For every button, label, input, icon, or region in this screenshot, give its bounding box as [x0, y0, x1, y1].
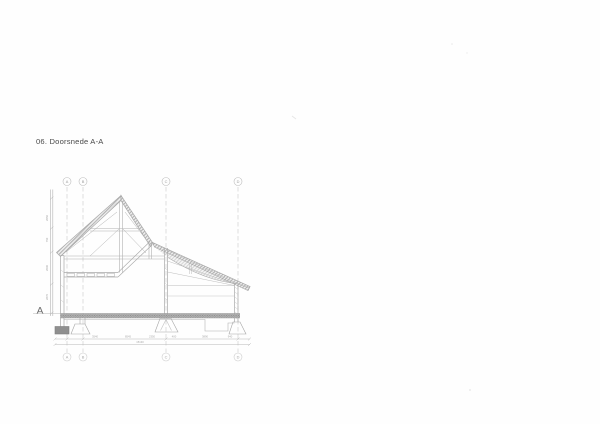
height-scale [50, 190, 53, 317]
scanned-drawing-page: 06. Doorsnede A-A A B C D A [0, 0, 600, 424]
height-dim-2: 750 [45, 237, 49, 242]
grid-bubble-bottom-b: B [82, 355, 85, 360]
height-dim-4: 2870 [45, 294, 49, 300]
grid-bubbles-bottom [63, 353, 242, 361]
scan-noise-specks [292, 43, 471, 391]
height-dim-1: 2650 [45, 215, 49, 221]
grid-bubbles-top [63, 178, 242, 186]
footing-b [71, 324, 90, 334]
height-dim-3: 2600 [45, 265, 49, 271]
footings [55, 318, 246, 334]
grid-bubble-bottom-d: D [237, 355, 240, 360]
section-drawing-svg: 06. Doorsnede A-A A B C D A [0, 0, 600, 424]
grid-bubble-top-d: D [237, 179, 240, 184]
footing-d [229, 322, 246, 334]
gable-truss [63, 201, 165, 273]
dim-label-4: 400 [172, 335, 177, 339]
footing-left [55, 327, 69, 335]
grid-bubble-top-b: B [82, 179, 85, 184]
grid-bubble-bottom-c: C [165, 355, 168, 360]
grid-bubble-top-c: C [165, 179, 168, 184]
drawing-title: 06. Doorsnede A-A [36, 137, 104, 146]
dim-label-2: 8545 [125, 335, 131, 339]
dim-label-5: 3890 [202, 335, 208, 339]
height-scale-labels: 2650 750 2600 2870 [45, 215, 49, 300]
dim-label-6: 940 [228, 335, 233, 339]
section-cut-marker: A [36, 305, 43, 317]
grid-bubble-bottom-a: A [66, 355, 69, 360]
dim-label-total: 15130 [136, 340, 144, 344]
roof [57, 196, 251, 291]
dim-label-3: 2350 [149, 335, 155, 339]
dim-label-1: 3540 [92, 335, 98, 339]
dimension-labels: 3540 8545 2350 400 3890 940 15130 [92, 335, 233, 345]
grid-bubble-top-a: A [66, 179, 69, 184]
foundation-step [64, 320, 235, 332]
